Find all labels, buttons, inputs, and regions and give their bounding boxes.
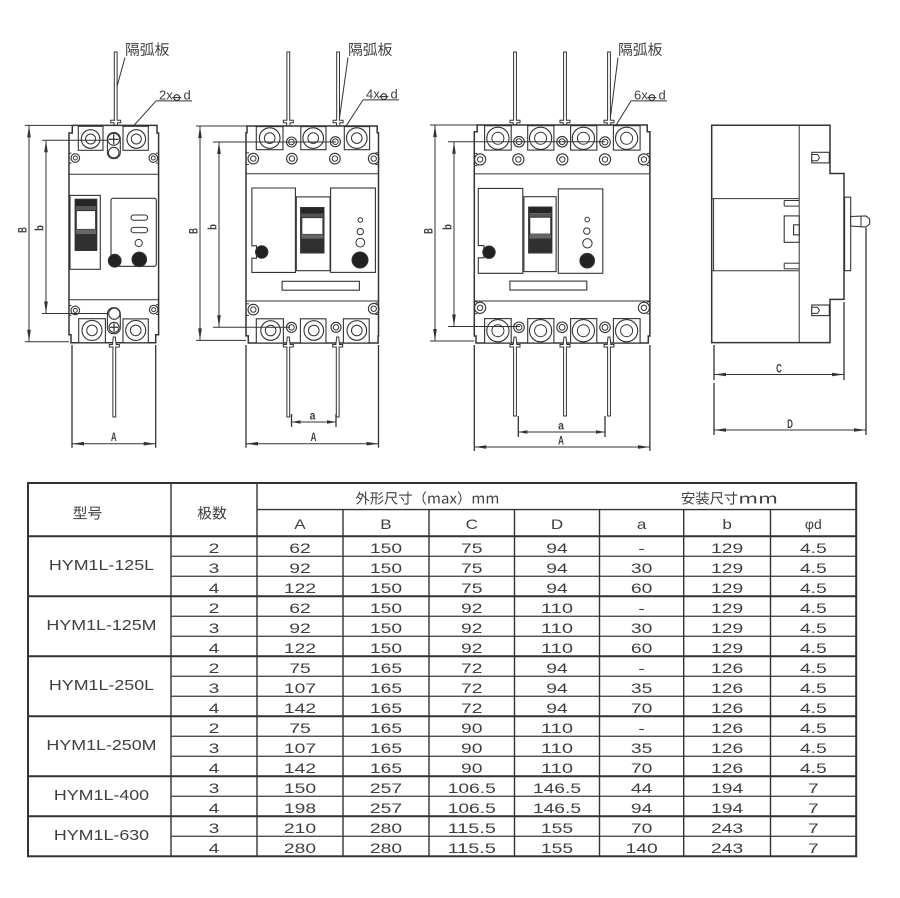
svg-text:110: 110 [541,760,573,776]
svg-text:30: 30 [631,620,653,636]
svg-text:110: 110 [541,720,573,736]
svg-text:4.5: 4.5 [800,680,827,696]
svg-text:75: 75 [461,580,483,596]
svg-text:7: 7 [808,800,819,816]
svg-text:6x: 6x [634,87,648,102]
svg-text:129: 129 [711,580,743,596]
svg-text:B: B [380,516,391,532]
svg-text:72: 72 [461,700,483,716]
svg-text:HYM1L-400: HYM1L-400 [54,787,149,804]
svg-text:B: B [16,227,30,233]
svg-text:d: d [184,87,191,102]
svg-text:257: 257 [370,800,402,816]
svg-text:62: 62 [289,600,311,616]
svg-text:2: 2 [209,660,220,676]
svg-text:HYM1L-630: HYM1L-630 [54,827,149,844]
svg-text:165: 165 [370,660,402,676]
svg-text:d: d [391,86,398,101]
svg-text:B: B [187,228,201,234]
svg-text:150: 150 [370,540,402,556]
svg-text:4.5: 4.5 [800,620,827,636]
svg-text:7: 7 [808,780,819,796]
svg-text:2: 2 [209,540,220,556]
svg-text:-: - [638,600,645,616]
svg-text:A: A [111,430,117,444]
svg-text:d: d [659,87,666,102]
svg-text:HYM1L-125M: HYM1L-125M [46,617,156,634]
svg-text:2: 2 [209,720,220,736]
svg-text:-: - [638,660,645,676]
svg-text:110: 110 [541,620,573,636]
svg-text:110: 110 [541,740,573,756]
svg-text:4: 4 [209,640,220,656]
svg-text:φd: φd [805,516,822,532]
svg-text:129: 129 [711,620,743,636]
svg-text:A: A [558,434,564,448]
svg-text:D: D [787,417,793,431]
svg-text:7: 7 [808,820,819,836]
svg-text:129: 129 [711,640,743,656]
svg-text:115.5: 115.5 [448,840,497,856]
svg-text:HYM1L-125L: HYM1L-125L [49,557,154,574]
svg-text:62: 62 [289,540,311,556]
svg-text:107: 107 [284,680,316,696]
svg-text:280: 280 [370,840,402,856]
svg-text:a: a [310,409,316,423]
svg-text:150: 150 [370,640,402,656]
svg-text:94: 94 [546,660,568,676]
svg-text:110: 110 [541,600,573,616]
svg-text:165: 165 [370,760,402,776]
svg-text:4.5: 4.5 [800,760,827,776]
svg-text:3: 3 [209,620,220,636]
svg-text:129: 129 [711,600,743,616]
svg-text:280: 280 [284,840,316,856]
svg-text:4: 4 [209,700,220,716]
svg-text:140: 140 [626,840,658,856]
svg-text:126: 126 [711,700,743,716]
svg-text:150: 150 [370,560,402,576]
svg-text:110: 110 [541,640,573,656]
svg-text:146.5: 146.5 [533,800,582,816]
svg-text:4.5: 4.5 [800,720,827,736]
svg-text:4: 4 [209,760,220,776]
svg-text:4.5: 4.5 [800,560,827,576]
svg-text:150: 150 [370,600,402,616]
svg-text:122: 122 [284,640,316,656]
svg-text:155: 155 [541,820,573,836]
svg-text:72: 72 [461,680,483,696]
svg-text:194: 194 [711,780,743,796]
svg-text:b: b [722,516,732,532]
svg-text:150: 150 [284,780,316,796]
svg-text:106.5: 106.5 [448,780,497,796]
svg-text:A: A [294,516,306,532]
svg-text:126: 126 [711,720,743,736]
svg-text:94: 94 [546,680,568,696]
svg-text:3: 3 [209,780,220,796]
svg-text:210: 210 [284,820,316,836]
svg-text:94: 94 [631,800,653,816]
svg-text:126: 126 [711,760,743,776]
svg-text:75: 75 [289,720,311,736]
svg-text:A: A [311,430,317,444]
svg-text:4.5: 4.5 [800,600,827,616]
svg-text:70: 70 [631,760,653,776]
svg-text:2: 2 [209,600,220,616]
svg-text:126: 126 [711,680,743,696]
svg-text:4.5: 4.5 [800,740,827,756]
svg-text:94: 94 [546,560,568,576]
svg-text:165: 165 [370,720,402,736]
svg-text:3: 3 [209,820,220,836]
svg-text:D: D [551,516,563,532]
svg-text:92: 92 [289,560,311,576]
svg-text:106.5: 106.5 [448,800,497,816]
svg-text:4.5: 4.5 [800,540,827,556]
svg-text:92: 92 [289,620,311,636]
svg-text:165: 165 [370,740,402,756]
svg-text:122: 122 [284,580,316,596]
svg-text:4.5: 4.5 [800,700,827,716]
svg-text:115.5: 115.5 [448,820,497,836]
svg-text:7: 7 [808,840,819,856]
svg-text:142: 142 [284,700,316,716]
svg-text:90: 90 [461,740,483,756]
svg-text:4: 4 [209,800,220,816]
svg-text:92: 92 [461,600,483,616]
svg-text:280: 280 [370,820,402,836]
svg-text:198: 198 [284,800,316,816]
svg-text:3: 3 [209,560,220,576]
svg-text:126: 126 [711,660,743,676]
svg-text:142: 142 [284,760,316,776]
svg-text:129: 129 [711,560,743,576]
svg-text:94: 94 [546,700,568,716]
svg-text:b: b [33,225,47,231]
svg-text:129: 129 [711,540,743,556]
svg-text:165: 165 [370,680,402,696]
svg-text:150: 150 [370,580,402,596]
svg-text:a: a [637,516,647,532]
svg-text:75: 75 [461,540,483,556]
svg-text:257: 257 [370,780,402,796]
svg-text:72: 72 [461,660,483,676]
svg-text:-: - [638,540,645,556]
svg-text:4: 4 [209,580,220,596]
svg-text:4.5: 4.5 [800,580,827,596]
svg-text:4x: 4x [366,86,380,101]
svg-text:HYM1L-250L: HYM1L-250L [49,677,154,694]
svg-text:HYM1L-250M: HYM1L-250M [46,737,156,754]
svg-text:107: 107 [284,740,316,756]
svg-text:75: 75 [289,660,311,676]
svg-text:146.5: 146.5 [533,780,582,796]
svg-text:92: 92 [461,640,483,656]
svg-text:-: - [638,720,645,736]
svg-text:4.5: 4.5 [800,660,827,676]
svg-text:B: B [422,228,436,234]
svg-text:70: 70 [631,700,653,716]
svg-text:C: C [466,516,478,532]
svg-text:35: 35 [631,740,653,756]
svg-text:90: 90 [461,720,483,736]
svg-text:94: 94 [546,540,568,556]
svg-text:3: 3 [209,680,220,696]
svg-text:90: 90 [461,760,483,776]
svg-text:b: b [441,224,455,230]
svg-text:C: C [776,361,782,375]
svg-text:30: 30 [631,560,653,576]
svg-text:94: 94 [546,580,568,596]
svg-text:3: 3 [209,740,220,756]
svg-text:75: 75 [461,560,483,576]
svg-text:243: 243 [711,840,743,856]
svg-text:194: 194 [711,800,743,816]
svg-text:70: 70 [631,820,653,836]
svg-text:92: 92 [461,620,483,636]
svg-text:243: 243 [711,820,743,836]
svg-text:b: b [206,224,220,230]
svg-text:4: 4 [209,840,220,856]
svg-text:4.5: 4.5 [800,640,827,656]
svg-text:150: 150 [370,620,402,636]
svg-text:a: a [558,419,564,433]
svg-text:126: 126 [711,740,743,756]
svg-text:35: 35 [631,680,653,696]
svg-text:44: 44 [631,780,653,796]
svg-text:2x: 2x [159,87,173,102]
svg-text:60: 60 [631,640,653,656]
svg-text:165: 165 [370,700,402,716]
svg-text:60: 60 [631,580,653,596]
svg-text:155: 155 [541,840,573,856]
